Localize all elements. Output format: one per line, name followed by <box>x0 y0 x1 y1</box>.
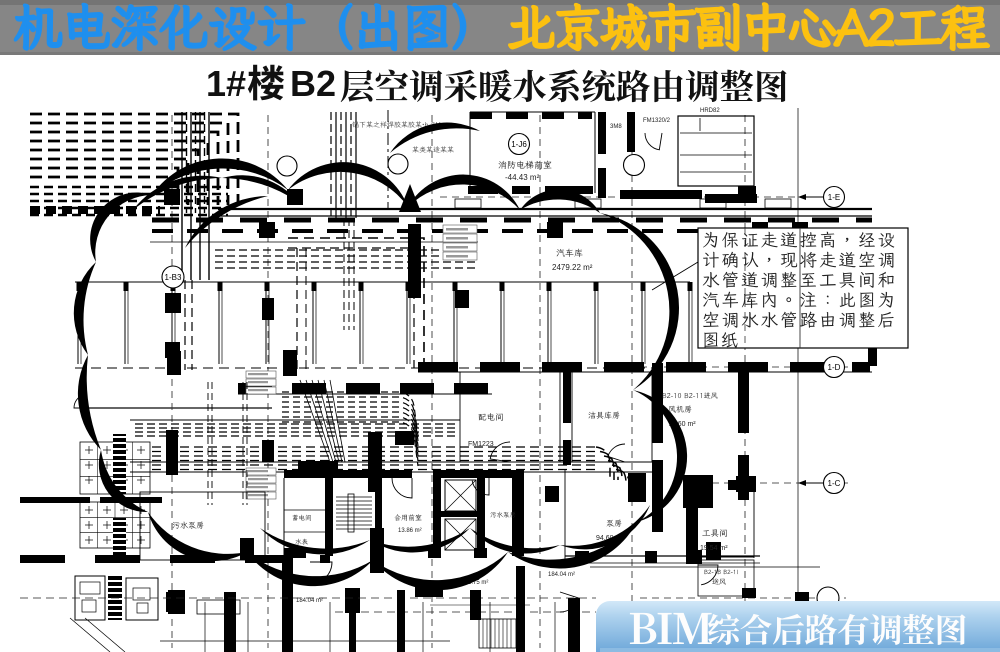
svg-text:3M8: 3M8 <box>610 124 622 130</box>
svg-text:184.04 m²: 184.04 m² <box>548 572 575 578</box>
svg-text:19.54 m²: 19.54 m² <box>700 545 728 552</box>
svg-text:1-E: 1-E <box>828 193 840 202</box>
svg-text:184.04 m²: 184.04 m² <box>296 598 323 604</box>
svg-text:B2: B2 <box>290 63 336 104</box>
svg-text:1-B3: 1-B3 <box>165 273 182 282</box>
svg-text:13.86 m²: 13.86 m² <box>398 528 422 534</box>
svg-text:-44.43 m²: -44.43 m² <box>505 173 540 182</box>
svg-text:1#: 1# <box>206 63 246 104</box>
svg-text:FM1320/2: FM1320/2 <box>643 118 671 124</box>
svg-text:1-D: 1-D <box>828 363 841 372</box>
svg-text:1-J6: 1-J6 <box>511 140 527 149</box>
svg-text:HRD82: HRD82 <box>700 108 720 114</box>
svg-text:2479.22 m²: 2479.22 m² <box>552 263 593 272</box>
svg-text:1-C: 1-C <box>828 479 841 488</box>
